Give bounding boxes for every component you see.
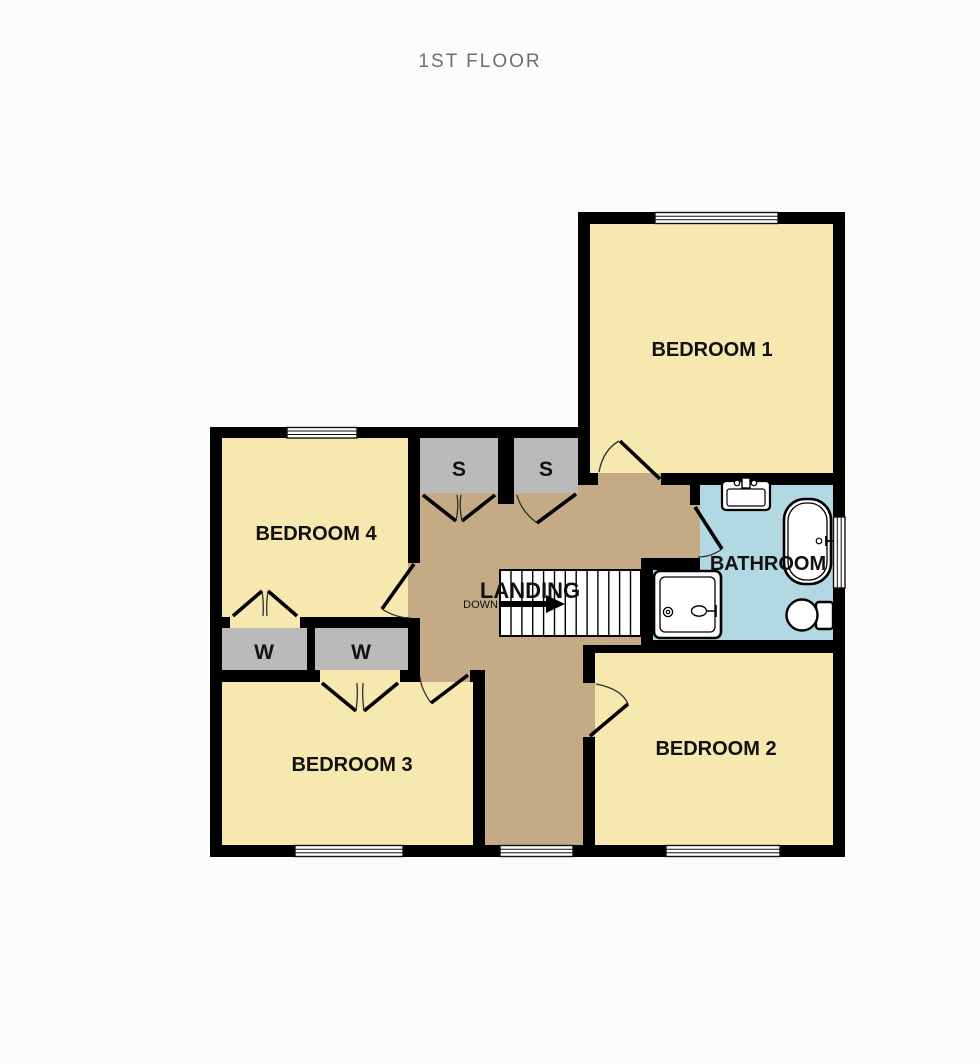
floor-plan-page: 1ST FLOOR (0, 0, 980, 1064)
bedroom-3-window (295, 846, 403, 857)
bedroom-1-door-threshold (598, 473, 661, 485)
bedroom-2-label: BEDROOM 2 (655, 738, 776, 760)
bedroom-2-window (666, 846, 780, 857)
bedroom-1-label: BEDROOM 1 (651, 339, 772, 361)
bedroom-3-label: BEDROOM 3 (291, 754, 412, 776)
bedroom-2-door-threshold (583, 683, 595, 737)
landing-floor-segment (578, 558, 641, 570)
floor-plan-canvas: 1ST FLOOR (0, 0, 980, 1064)
stairs-down-label: DOWN (463, 599, 498, 611)
wardrobe-1-opening (230, 617, 300, 628)
landing-floor-segment (578, 485, 690, 558)
bedroom-1-window (655, 213, 778, 224)
wardrobe-closet-1-label: W (254, 641, 274, 664)
bathroom-label: BATHROOM (710, 553, 826, 575)
storage-closet-1-label: S (452, 458, 466, 481)
toilet-icon (787, 600, 834, 631)
bedroom-4-window (287, 428, 357, 439)
bathroom-window (834, 517, 846, 588)
closet-divider-wall (498, 438, 514, 504)
wardrobe-2-opening (320, 670, 400, 682)
hallway-window (500, 846, 573, 857)
page-title: 1ST FLOOR (418, 51, 541, 72)
storage-closet-2-label: S (539, 458, 553, 481)
bedroom-4-label: BEDROOM 4 (255, 523, 377, 545)
hallway-floor-segment (485, 670, 583, 845)
shower-icon (654, 571, 721, 638)
wardrobe-closet-2-label: W (351, 641, 371, 664)
sink-icon (722, 478, 770, 510)
